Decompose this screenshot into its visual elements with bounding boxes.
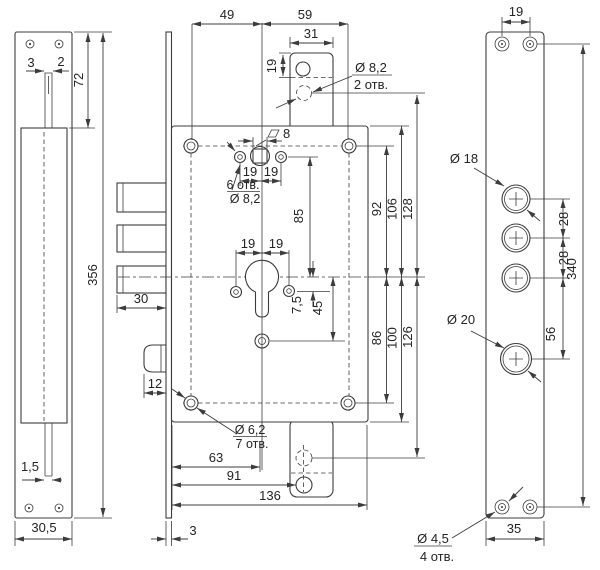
callout-dia-8-2: Ø 8,2 xyxy=(230,192,261,206)
dim-plate-width: 30,5 xyxy=(31,520,56,535)
dim-106: 106 xyxy=(385,198,400,220)
dim-45: 45 xyxy=(310,301,325,315)
lock-body-view: 49 59 31 19 8 6 отв. Ø 8,2 Ø 8,2 2 отв. … xyxy=(117,7,425,546)
callout-dia-6-2: Ø 6,2 xyxy=(235,423,266,437)
dim-35: 35 xyxy=(507,521,521,536)
dim-square-8: 8 xyxy=(283,126,290,141)
mounting-bar-outline xyxy=(486,32,544,518)
callout-7-holes: 7 отв. xyxy=(236,437,269,451)
lock-technical-drawing: 3 2 72 356 1,5 30,5 xyxy=(0,0,600,570)
dim-340: 340 xyxy=(564,258,579,280)
drawing-canvas: 3 2 72 356 1,5 30,5 xyxy=(0,0,600,570)
dim-7-5: 7,5 xyxy=(289,296,304,314)
dim-126: 126 xyxy=(400,326,415,348)
dim-49: 49 xyxy=(220,7,234,22)
dim-85: 85 xyxy=(291,209,306,223)
callout-4-holes: 4 отв. xyxy=(420,549,454,564)
dim-86: 86 xyxy=(369,331,384,345)
dim-63: 63 xyxy=(209,450,223,465)
dim-19-spindle-r: 19 xyxy=(264,164,278,179)
dim-91: 91 xyxy=(227,468,241,483)
dim-slot-width: 1,5 xyxy=(21,459,39,474)
dim-total-height: 356 xyxy=(85,264,100,286)
dim-59: 59 xyxy=(298,7,312,22)
dim-19-cyl-l: 19 xyxy=(241,236,255,251)
dim-12: 12 xyxy=(148,376,162,391)
dim-100: 100 xyxy=(385,327,400,349)
dim-28-a: 28 xyxy=(556,212,571,226)
dim-upper-section: 72 xyxy=(71,73,86,87)
callout-dia-4-5: Ø 4,5 xyxy=(417,531,449,546)
callout-tab-count: 2 отв. xyxy=(354,77,388,92)
callout-6-holes: 6 отв. xyxy=(227,178,260,192)
dim-slot-gap: 3 xyxy=(27,55,34,70)
dim-31: 31 xyxy=(304,26,318,41)
callout-dia-20: Ø 20 xyxy=(447,312,475,327)
latch-bolt xyxy=(144,345,166,372)
dim-56: 56 xyxy=(543,327,558,341)
dim-19-spindle-l: 19 xyxy=(243,164,257,179)
strike-plate-view: 3 2 72 356 1,5 30,5 xyxy=(15,32,112,546)
dim-30: 30 xyxy=(134,291,148,306)
spindle-hub xyxy=(251,147,270,166)
dim-128: 128 xyxy=(400,198,415,220)
dim-19-bar: 19 xyxy=(509,4,523,19)
deadbolts xyxy=(117,183,166,293)
callout-dia-18: Ø 18 xyxy=(450,151,478,166)
dim-3-face: 3 xyxy=(189,523,196,538)
dim-136: 136 xyxy=(259,488,281,503)
dim-92: 92 xyxy=(369,202,384,216)
mounting-bar-view: 19 Ø 18 28 28 340 Ø 20 56 35 Ø 4,5 4 отв… xyxy=(414,4,590,564)
dim-19-cyl-r: 19 xyxy=(269,236,283,251)
callout-tab-dia: Ø 8,2 xyxy=(355,60,387,75)
strike-plate-outline xyxy=(15,32,72,518)
faceplate xyxy=(166,32,172,518)
dim-slot-side: 2 xyxy=(57,54,64,69)
dim-19-tab: 19 xyxy=(264,59,279,73)
